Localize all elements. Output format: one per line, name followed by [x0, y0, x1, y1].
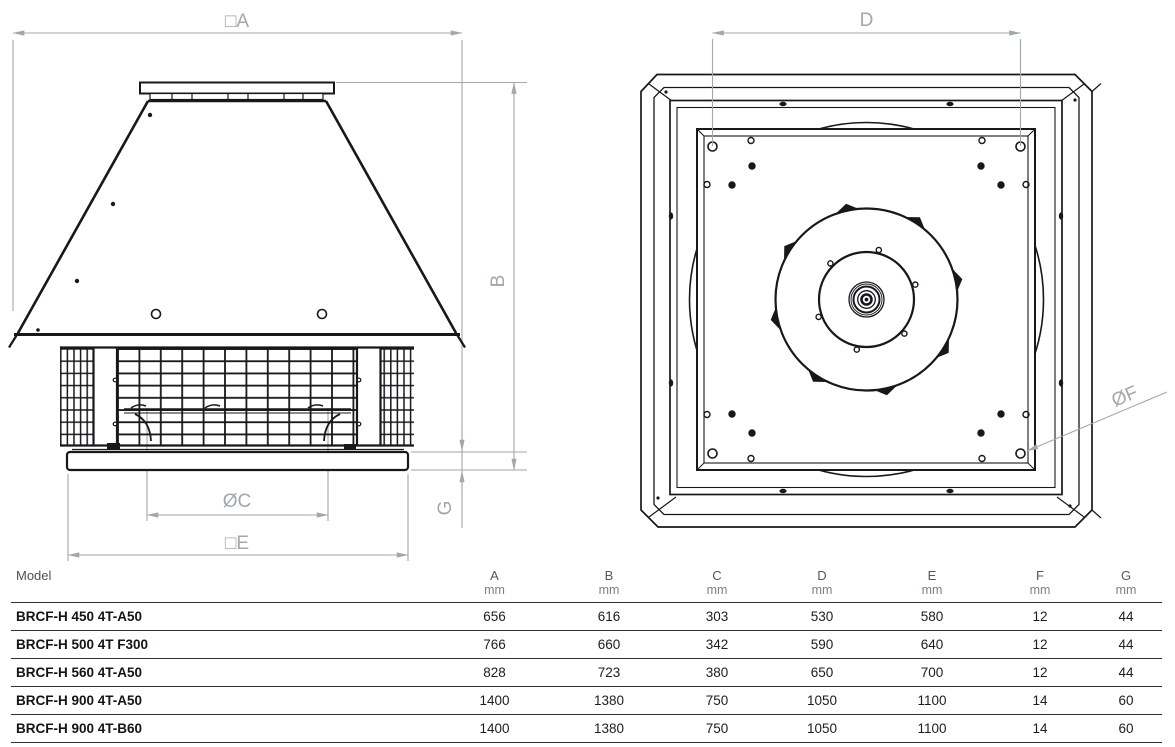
dim-label-A: □A — [225, 11, 249, 32]
value-f: 14 — [990, 687, 1090, 715]
table-row: BRCF-H 900 4T-B60 1400 1380 750 1050 110… — [11, 715, 1162, 743]
value-e: 700 — [874, 659, 990, 687]
value-c: 342 — [664, 631, 770, 659]
column-label: F — [990, 568, 1090, 583]
mesh-right-block — [381, 348, 415, 445]
value-e: 1100 — [874, 715, 990, 743]
value-c: 750 — [664, 715, 770, 743]
guard-post-right — [357, 347, 381, 446]
dimensions-table: Model A mm B mm C mm D mm E — [11, 566, 1162, 743]
top-view: D ØF — [641, 10, 1167, 527]
dim-label-G: G — [435, 501, 456, 516]
column-header-f: F mm — [990, 566, 1090, 603]
column-unit: mm — [435, 583, 554, 598]
value-e: 640 — [874, 631, 990, 659]
front-view: □A B G ØC □E — [9, 11, 527, 561]
mesh-left-block — [60, 348, 94, 445]
value-d: 1050 — [770, 715, 874, 743]
table-row: BRCF-H 500 4T F300 766 660 342 590 640 1… — [11, 631, 1162, 659]
value-g: 44 — [1090, 659, 1162, 687]
mesh-main — [117, 348, 357, 445]
value-f: 12 — [990, 603, 1090, 631]
value-b: 723 — [554, 659, 664, 687]
roof-fan-side — [9, 83, 465, 471]
value-d: 1050 — [770, 687, 874, 715]
guard-foot — [107, 443, 120, 449]
base-plate — [67, 452, 408, 470]
column-header-c: C mm — [664, 566, 770, 603]
value-b: 1380 — [554, 687, 664, 715]
technical-drawing: □A B G ØC □E — [0, 0, 1175, 566]
value-f: 12 — [990, 659, 1090, 687]
column-header-model: Model — [11, 566, 435, 603]
column-header-e: E mm — [874, 566, 990, 603]
model-name: BRCF-H 560 4T-A50 — [11, 659, 435, 687]
value-f: 12 — [990, 631, 1090, 659]
model-name: BRCF-H 500 4T F300 — [11, 631, 435, 659]
column-header-g: G mm — [1090, 566, 1162, 603]
value-d: 590 — [770, 631, 874, 659]
column-unit: mm — [770, 583, 874, 598]
value-d: 650 — [770, 659, 874, 687]
value-a: 766 — [435, 631, 554, 659]
value-a: 1400 — [435, 687, 554, 715]
value-b: 616 — [554, 603, 664, 631]
value-c: 750 — [664, 687, 770, 715]
column-unit: mm — [1090, 583, 1162, 598]
hood-screw-hole — [152, 310, 161, 319]
value-g: 60 — [1090, 687, 1162, 715]
column-unit: mm — [990, 583, 1090, 598]
column-label: C — [664, 568, 770, 583]
table-row: BRCF-H 900 4T-A50 1400 1380 750 1050 110… — [11, 687, 1162, 715]
dim-label-E: □E — [225, 533, 249, 554]
column-header-d: D mm — [770, 566, 874, 603]
dim-label-D: D — [860, 10, 874, 31]
model-name: BRCF-H 900 4T-B60 — [11, 715, 435, 743]
dim-label-B: B — [488, 275, 509, 288]
value-f: 14 — [990, 715, 1090, 743]
fan-dimension-sheet: □A B G ØC □E — [0, 0, 1175, 747]
model-name: BRCF-H 900 4T-A50 — [11, 687, 435, 715]
value-a: 1400 — [435, 715, 554, 743]
table-header-row: Model A mm B mm C mm D mm E — [11, 566, 1162, 603]
column-label: G — [1090, 568, 1162, 583]
column-label: A — [435, 568, 554, 583]
column-header-b: B mm — [554, 566, 664, 603]
value-g: 44 — [1090, 603, 1162, 631]
dim-label-F: ØF — [1109, 382, 1141, 412]
guard-mesh — [60, 347, 414, 450]
value-e: 580 — [874, 603, 990, 631]
value-e: 1100 — [874, 687, 990, 715]
shaft-center — [865, 298, 869, 302]
cap-plate — [140, 83, 334, 94]
value-g: 44 — [1090, 631, 1162, 659]
frame-fold-flaps — [1092, 84, 1101, 519]
value-b: 660 — [554, 631, 664, 659]
value-c: 303 — [664, 603, 770, 631]
model-name: BRCF-H 450 4T-A50 — [11, 603, 435, 631]
hood-screw-hole — [318, 310, 327, 319]
dim-label-C: ØC — [223, 491, 252, 512]
cap-slats — [150, 94, 323, 100]
value-d: 530 — [770, 603, 874, 631]
value-b: 1380 — [554, 715, 664, 743]
guard-post-left — [94, 347, 118, 446]
table-row: BRCF-H 450 4T-A50 656 616 303 530 580 12… — [11, 603, 1162, 631]
column-label: E — [874, 568, 990, 583]
column-label: B — [554, 568, 664, 583]
column-unit: mm — [664, 583, 770, 598]
value-g: 60 — [1090, 715, 1162, 743]
value-c: 380 — [664, 659, 770, 687]
column-header-a: A mm — [435, 566, 554, 603]
value-a: 828 — [435, 659, 554, 687]
column-unit: mm — [554, 583, 664, 598]
table-row: BRCF-H 560 4T-A50 828 723 380 650 700 12… — [11, 659, 1162, 687]
column-unit: mm — [874, 583, 990, 598]
column-label: D — [770, 568, 874, 583]
value-a: 656 — [435, 603, 554, 631]
